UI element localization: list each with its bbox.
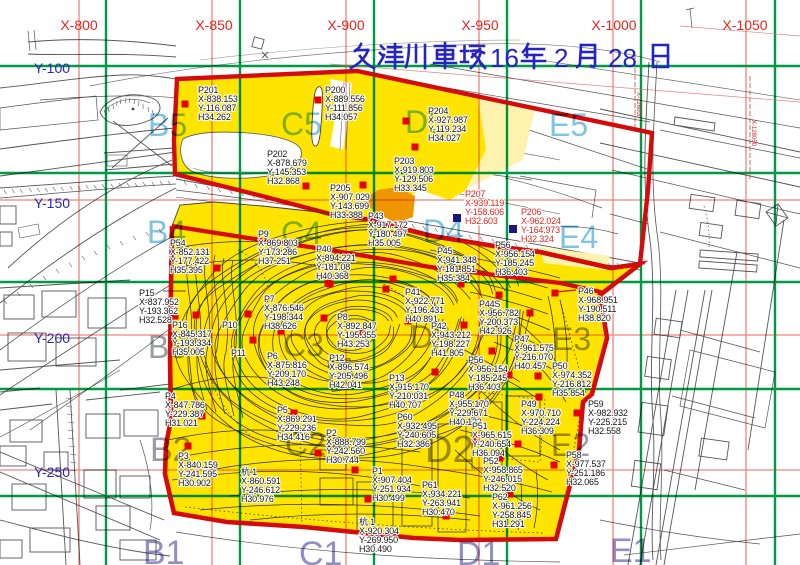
svg-text:X-950: X-950 <box>461 17 499 33</box>
svg-text:X-850: X-850 <box>195 17 233 33</box>
svg-text:E4: E4 <box>559 219 598 255</box>
svg-text:2: 2 <box>554 43 568 73</box>
svg-text:Y-200: Y-200 <box>34 330 70 346</box>
svg-text:D1: D1 <box>457 535 500 565</box>
svg-text:P11: P11 <box>231 348 246 358</box>
svg-text:B5: B5 <box>148 107 187 143</box>
svg-text:C3: C3 <box>283 327 324 363</box>
svg-text:B1: B1 <box>143 534 185 565</box>
svg-text:16: 16 <box>490 43 519 73</box>
svg-text:Y-100: Y-100 <box>34 60 70 76</box>
svg-text:C5: C5 <box>281 106 322 142</box>
svg-text:P10: P10 <box>222 320 238 330</box>
svg-text:X-1050: X-1050 <box>722 17 767 33</box>
svg-text:X-128000: X-128000 <box>635 92 641 119</box>
svg-text:Y-150: Y-150 <box>34 195 70 211</box>
svg-text:Y-250: Y-250 <box>34 464 70 480</box>
svg-text:X-128050: X-128050 <box>750 120 756 147</box>
svg-text:28: 28 <box>608 43 637 73</box>
svg-text:E5: E5 <box>549 107 588 143</box>
svg-text:X-1000: X-1000 <box>591 17 636 33</box>
svg-text:E3: E3 <box>552 321 591 357</box>
svg-text:E1: E1 <box>610 532 652 565</box>
svg-text:X-800: X-800 <box>60 17 98 33</box>
svg-text:C1: C1 <box>299 535 342 565</box>
svg-text:X-900: X-900 <box>327 17 365 33</box>
